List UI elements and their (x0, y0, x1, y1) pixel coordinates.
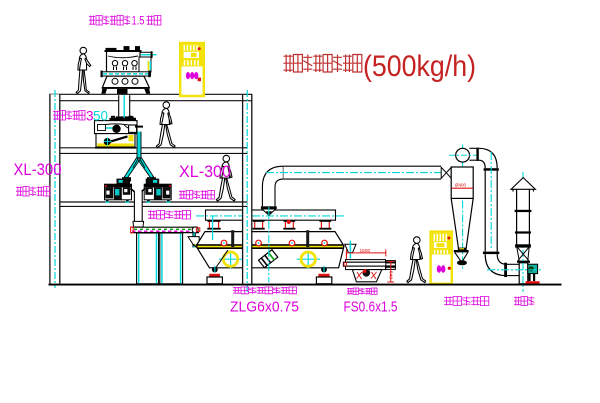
svg-text:1500: 1500 (360, 248, 371, 254)
svg-text:ZLG6x0.75: ZLG6x0.75 (230, 299, 299, 316)
svg-text:XL-300: XL-300 (179, 162, 231, 181)
svg-text:FS0.6x1.5: FS0.6x1.5 (344, 299, 398, 316)
svg-text:Ø400: Ø400 (455, 183, 467, 188)
svg-text:(500kg/h): (500kg/h) (363, 50, 476, 83)
svg-text:50: 50 (93, 109, 108, 124)
svg-text:XL-300: XL-300 (14, 160, 62, 179)
svg-text:540: 540 (388, 271, 394, 279)
svg-text:1.5: 1.5 (132, 14, 145, 28)
